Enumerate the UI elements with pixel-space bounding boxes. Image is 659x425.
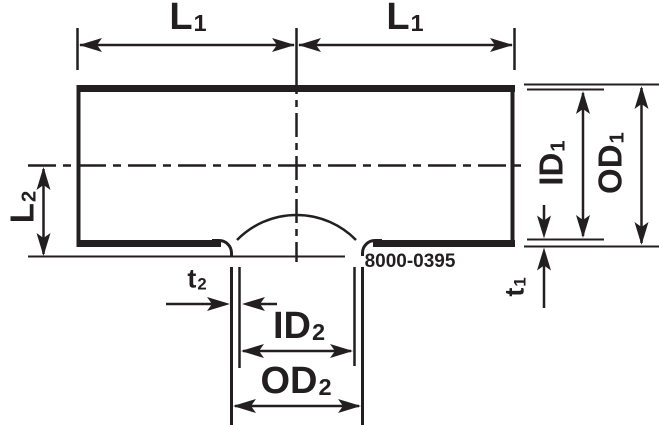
dim-label-id1-text: ID <box>533 153 570 186</box>
dim-t2 <box>166 297 277 311</box>
dim-label-l1-right-sub: 1 <box>411 10 424 36</box>
dim-label-od1-sub: 1 <box>606 132 629 143</box>
dim-label-od1-text: OD <box>592 144 629 194</box>
dim-label-od2: OD2 <box>260 362 331 400</box>
dim-label-id1: ID1 <box>535 140 568 185</box>
dim-label-id2: ID2 <box>273 307 325 345</box>
dim-label-t2-sub: 2 <box>197 274 206 293</box>
dim-label-id2-text: ID <box>273 305 311 347</box>
dim-label-od2-text: OD <box>260 360 317 402</box>
dim-label-od2-sub: 2 <box>318 374 331 400</box>
dim-label-l1-left-text: L <box>169 0 192 38</box>
dim-label-l1-left: L1 <box>169 0 206 36</box>
dim-label-l2-sub: 2 <box>18 191 41 202</box>
dim-label-t1-text: t <box>500 288 530 297</box>
dim-label-t1-sub: 1 <box>510 277 529 286</box>
dim-label-l1-right-text: L <box>386 0 409 38</box>
dim-label-l2-text: L <box>4 203 41 223</box>
dim-label-l2: L2 <box>6 191 39 224</box>
dim-label-id1-sub: 1 <box>547 140 570 151</box>
dim-label-od1: OD1 <box>594 132 627 194</box>
dim-label-id2-sub: 2 <box>312 319 325 345</box>
dim-label-t2-text: t <box>187 264 196 294</box>
dim-label-t1: t1 <box>502 277 529 296</box>
tee-fitting-dimension-drawing: L1 L1 L2 ID1 OD1 t1 t2 ID2 OD2 8000-0395 <box>0 0 659 425</box>
centerlines <box>28 70 525 262</box>
dim-t1 <box>537 205 551 308</box>
part-number: 8000-0395 <box>365 251 456 273</box>
dim-label-t2: t2 <box>187 266 206 293</box>
dim-l1 <box>78 28 515 70</box>
dim-label-l1-right: L1 <box>386 0 423 36</box>
dim-label-l1-left-sub: 1 <box>194 10 207 36</box>
